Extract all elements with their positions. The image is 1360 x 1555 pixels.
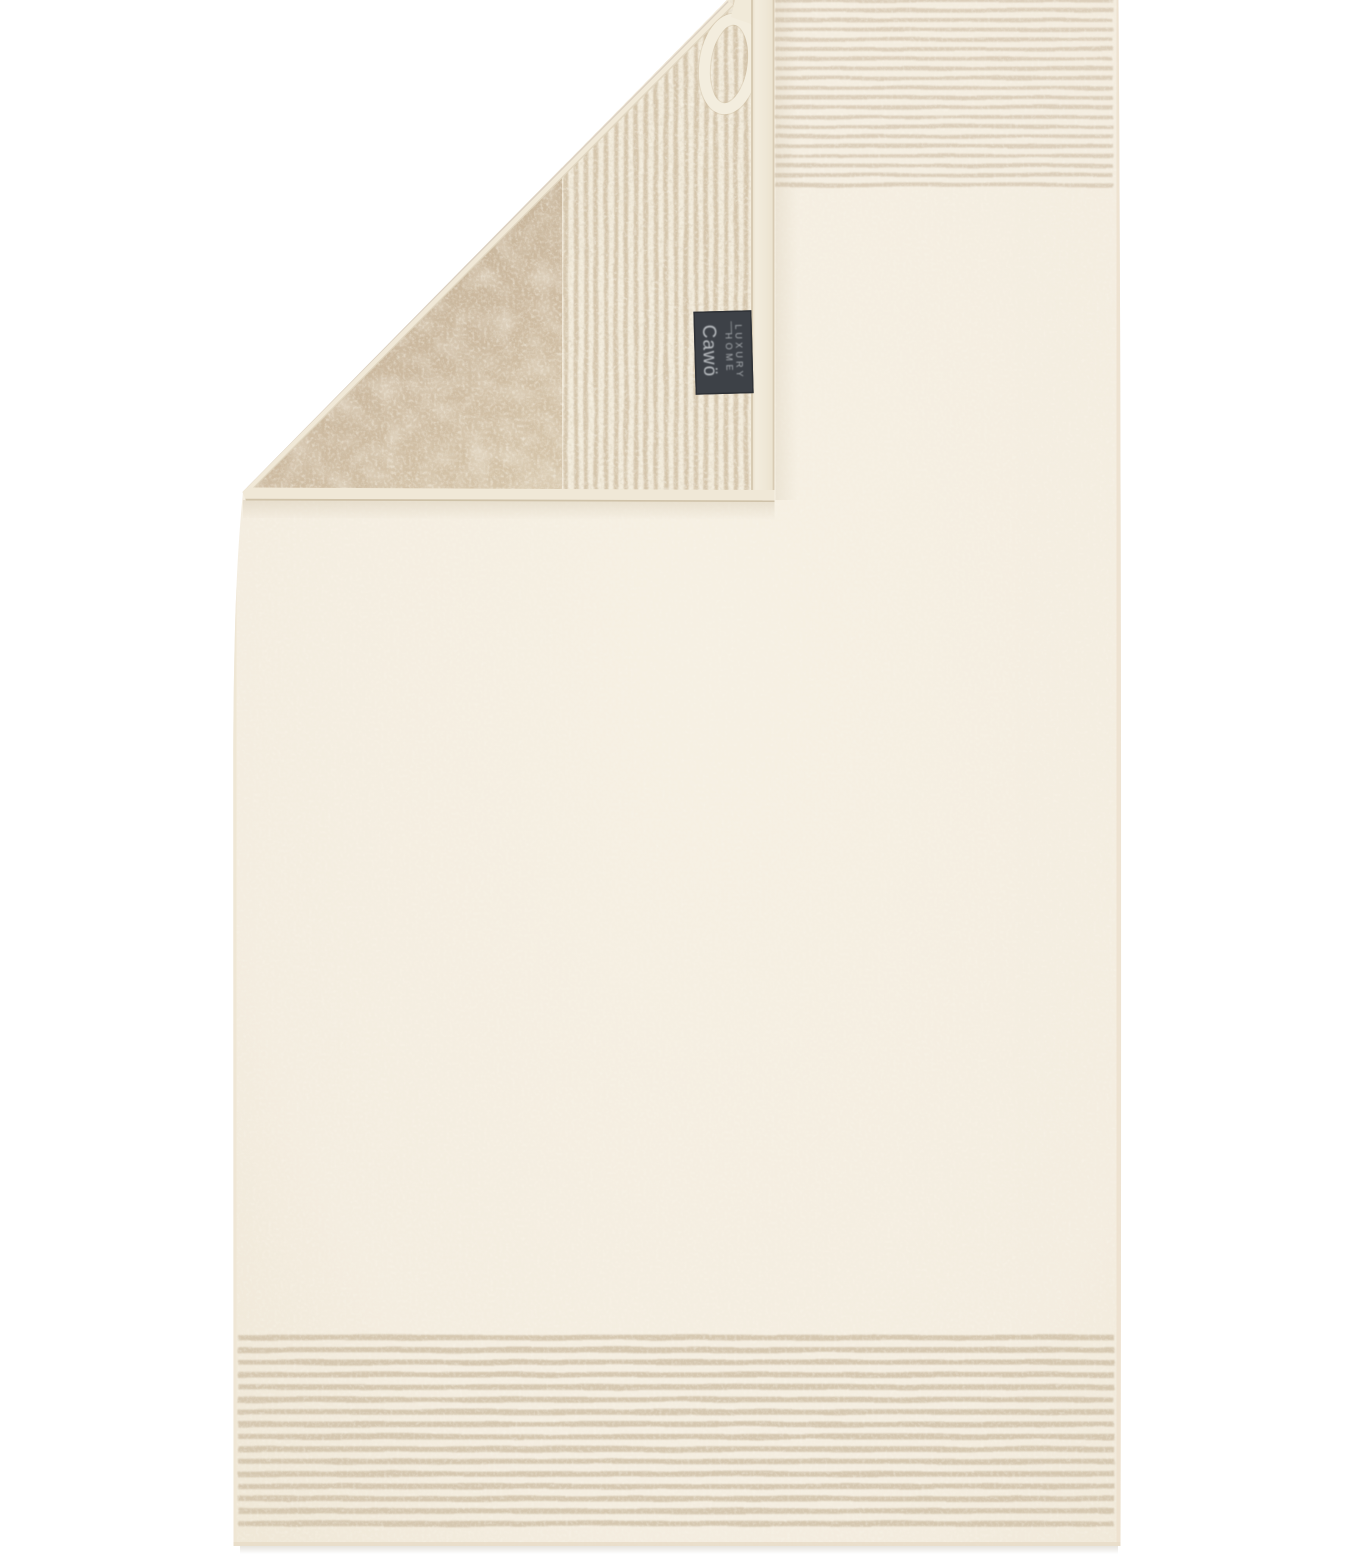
- svg-text:HOME: HOME: [723, 332, 734, 374]
- svg-text:Cawö: Cawö: [698, 324, 720, 377]
